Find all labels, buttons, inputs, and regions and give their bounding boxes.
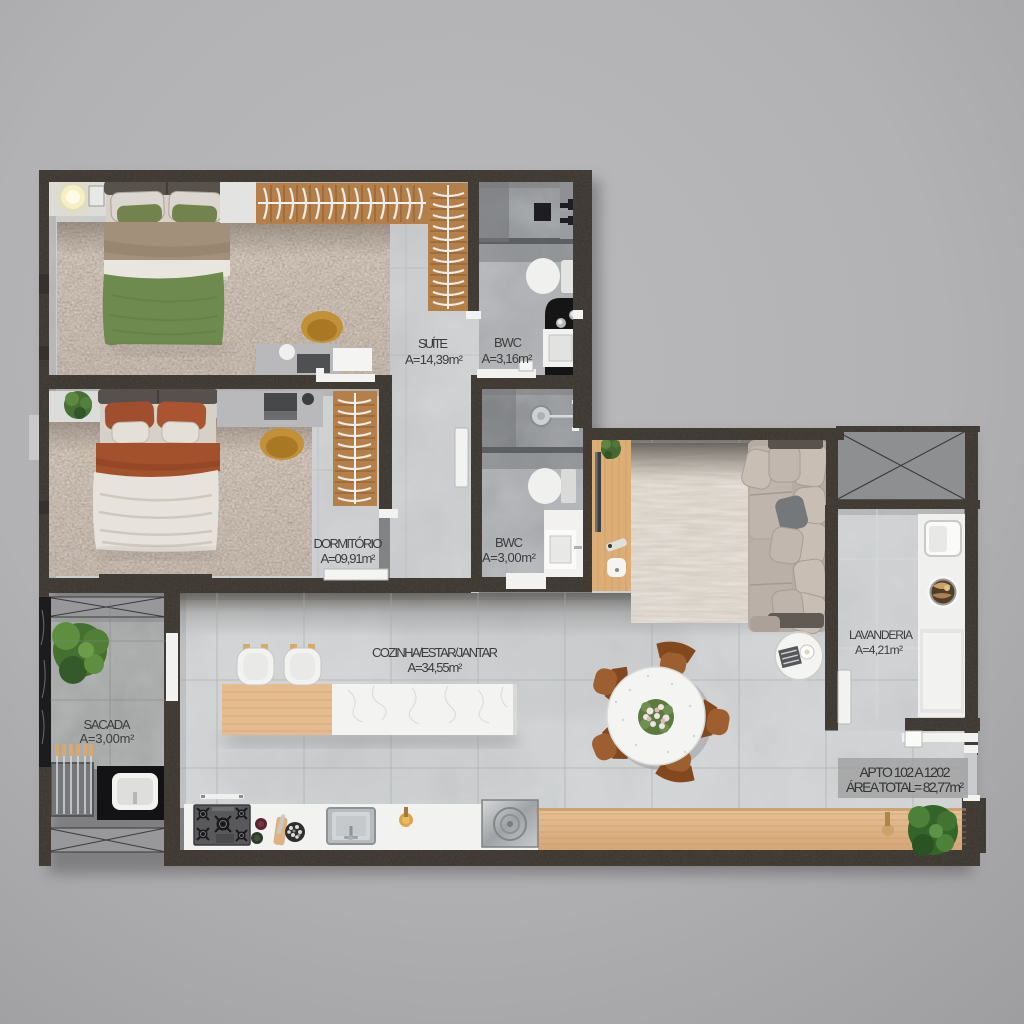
svg-text:APTO 102 A 1202: APTO 102 A 1202 — [860, 764, 951, 780]
svg-text:A=4,21m²: A=4,21m² — [855, 643, 903, 657]
svg-text:DORMITÓRIO: DORMITÓRIO — [314, 536, 383, 551]
svg-text:A=3,16m²: A=3,16m² — [482, 351, 534, 366]
svg-text:SUÍTE: SUÍTE — [418, 336, 448, 351]
svg-text:A=3,00m²: A=3,00m² — [482, 550, 537, 565]
svg-text:BWC: BWC — [495, 535, 523, 550]
svg-text:LAVANDERIA: LAVANDERIA — [849, 628, 913, 642]
svg-text:ÁREA TOTAL= 82,77m²: ÁREA TOTAL= 82,77m² — [846, 779, 964, 795]
svg-text:COZINHA/ESTAR/JANTAR: COZINHA/ESTAR/JANTAR — [372, 645, 498, 660]
svg-text:A=09,91m²: A=09,91m² — [321, 551, 377, 566]
svg-text:A=3,00m²: A=3,00m² — [80, 731, 136, 746]
svg-text:SACADA: SACADA — [84, 717, 131, 732]
svg-text:BWC: BWC — [494, 335, 522, 350]
svg-text:A=14,39m²: A=14,39m² — [405, 352, 464, 367]
svg-text:A=34,55m²: A=34,55m² — [408, 660, 464, 675]
